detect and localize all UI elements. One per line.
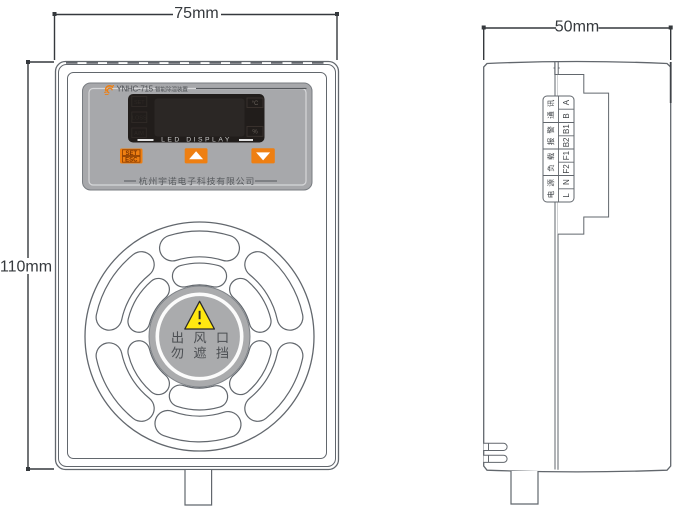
svg-text:F1: F1 bbox=[562, 150, 571, 160]
svg-text:LED DISPLAY: LED DISPLAY bbox=[161, 137, 232, 144]
svg-text:YNHC-715: YNHC-715 bbox=[117, 85, 154, 94]
svg-text:F2: F2 bbox=[562, 164, 571, 174]
svg-text:°C: °C bbox=[252, 101, 259, 107]
svg-text:50mm: 50mm bbox=[555, 19, 599, 36]
svg-text:ESC: ESC bbox=[125, 158, 138, 164]
svg-text:SET: SET bbox=[125, 151, 137, 157]
svg-text:B2: B2 bbox=[562, 137, 571, 147]
svg-text:SET: SET bbox=[134, 100, 145, 106]
svg-text:110mm: 110mm bbox=[0, 259, 52, 276]
svg-text:A: A bbox=[562, 99, 571, 105]
svg-text:%: % bbox=[252, 130, 258, 136]
svg-text:75mm: 75mm bbox=[174, 5, 218, 22]
svg-text:A/M: A/M bbox=[134, 131, 144, 137]
svg-text:N: N bbox=[562, 179, 571, 185]
svg-text:B1: B1 bbox=[562, 124, 571, 134]
svg-text:L: L bbox=[562, 193, 571, 198]
svg-text:LOSS: LOSS bbox=[132, 116, 147, 122]
svg-text:B: B bbox=[562, 113, 571, 118]
